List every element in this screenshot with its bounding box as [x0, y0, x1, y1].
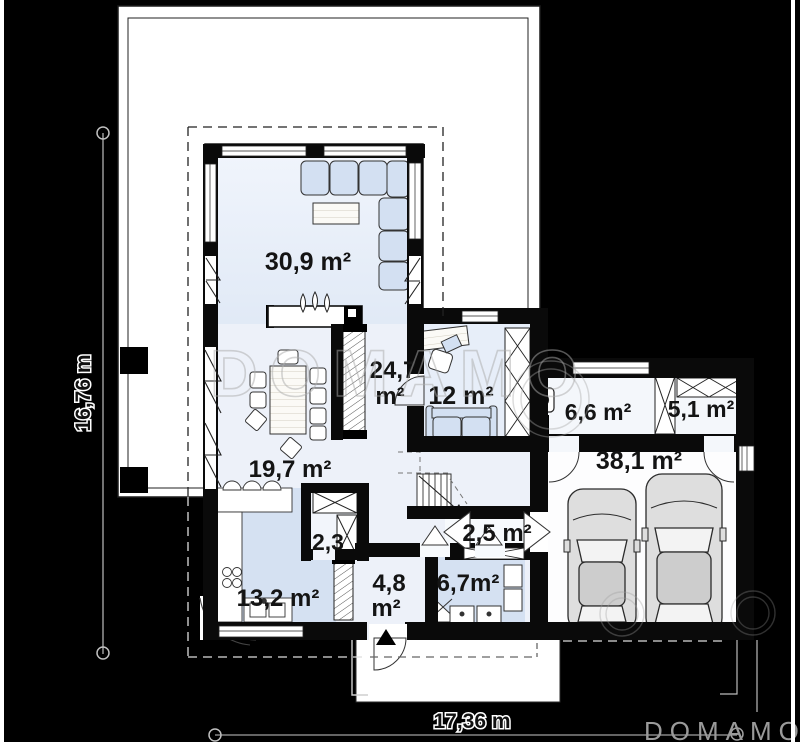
coffee-table	[313, 203, 359, 224]
room-label-garage: 38,1 m²	[596, 447, 682, 475]
terrace-pillar	[120, 467, 148, 493]
car-right	[642, 474, 726, 634]
room-label-dining: 19,7 m²	[249, 456, 332, 483]
entry-divider	[332, 556, 355, 620]
room-label-entry-2: m²	[371, 595, 400, 622]
car-left	[564, 489, 640, 631]
room-label-wc: 2,3	[312, 529, 344, 555]
terrace-pillar	[120, 347, 148, 374]
dimension-height-label: 16,76 m	[72, 354, 95, 431]
room-label-storage: 5,1 m²	[668, 396, 735, 422]
svg-text:DOMAMO: DOMAMO	[210, 336, 590, 410]
room-label-bathroom: 6,7m²	[437, 570, 500, 597]
room-label-kitchen: 13,2 m²	[237, 585, 320, 612]
room-label-corridor: 2,5 m²	[462, 520, 531, 547]
brand-logo: DOMAMO	[644, 716, 800, 746]
floor-plan-page: 30,9 m² 24,7 m² 12 m² 6,6 m² 5,1 m² 38,1…	[0, 0, 800, 747]
floor-plan-canvas: 30,9 m² 24,7 m² 12 m² 6,6 m² 5,1 m² 38,1…	[0, 0, 800, 747]
room-label-living: 30,9 m²	[265, 248, 351, 276]
room-label-entry-1: 4,8	[372, 570, 405, 597]
dimension-width-label: 17,36 m	[433, 710, 510, 733]
